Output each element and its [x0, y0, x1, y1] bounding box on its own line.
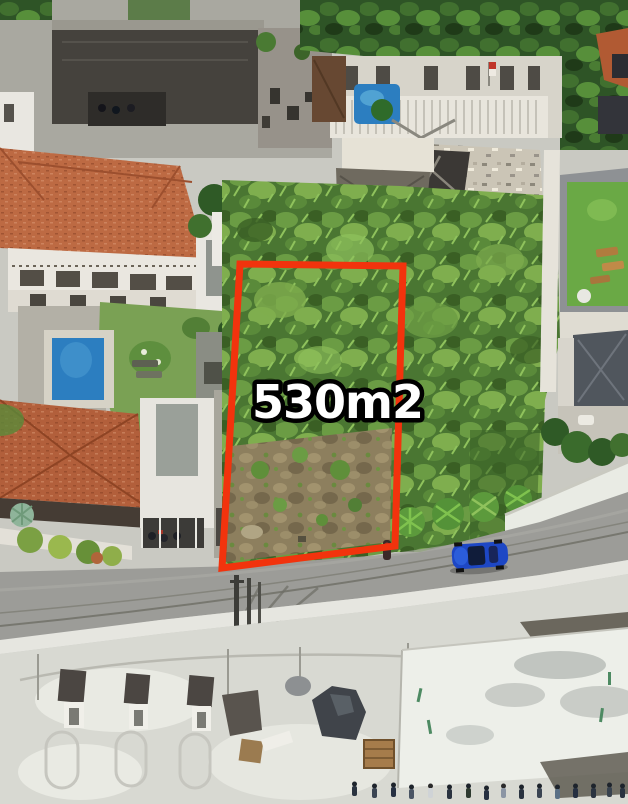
- wooden-crate: [364, 740, 394, 768]
- hut-roof: [58, 669, 87, 703]
- pergola: [204, 362, 222, 384]
- plumeria-tree: [129, 341, 171, 375]
- sun-lounger: [132, 360, 158, 367]
- parked-white-car: [578, 415, 594, 425]
- top-left-compound: [0, 0, 332, 164]
- pool-palm-tree: [371, 99, 393, 121]
- indonesian-flag: [489, 62, 496, 69]
- aerial-photo: 530m2 530m2: [0, 0, 628, 804]
- aerial-photo-screenshot: 530m2 530m2: [0, 0, 628, 804]
- area-label: 530m2: [252, 375, 423, 429]
- blue-car: [448, 539, 509, 576]
- plot-dirt-floor: [226, 428, 392, 562]
